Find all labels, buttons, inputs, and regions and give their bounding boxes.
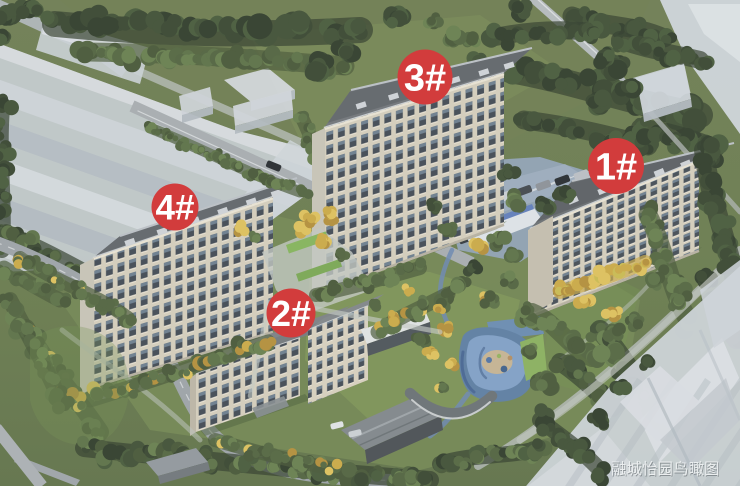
svg-text:4#: 4# [156, 189, 195, 228]
svg-text:1#: 1# [595, 147, 637, 189]
svg-text:3#: 3# [404, 58, 446, 100]
svg-text:融城怡园鸟瞰图: 融城怡园鸟瞰图 [611, 460, 720, 478]
svg-text:2#: 2# [271, 293, 311, 334]
